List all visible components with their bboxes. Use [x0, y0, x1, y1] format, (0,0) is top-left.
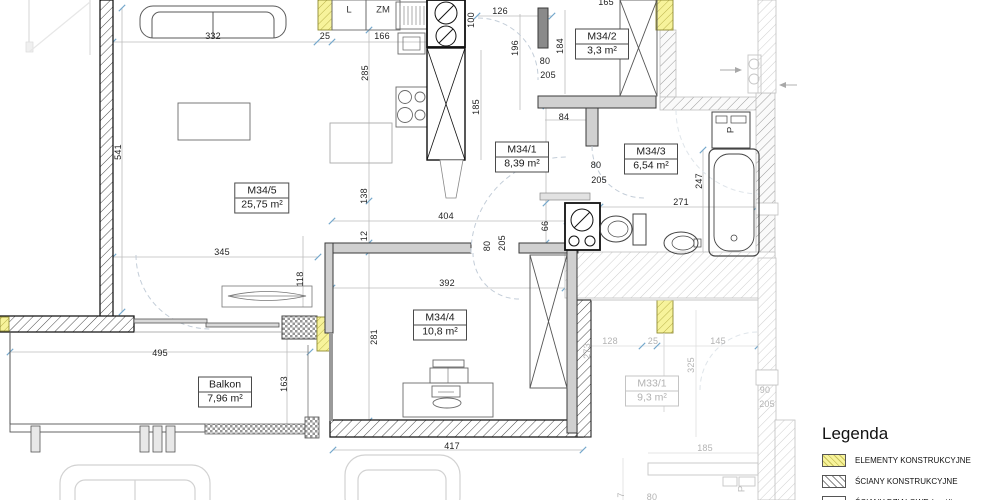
room-id: M33/1: [626, 377, 678, 391]
room-id: Balkon: [199, 378, 251, 392]
legend-swatch-grey-hatch-icon: [822, 475, 846, 488]
room-area: 25,75 m²: [235, 198, 288, 213]
fixture-label: L: [346, 5, 351, 16]
room-area: 8,39 m²: [496, 157, 548, 172]
dimension-label: 90: [760, 385, 770, 395]
dimension-label: 332: [205, 31, 221, 41]
room-id: M34/2: [576, 30, 628, 44]
room-label-M34-5: M34/525,75 m²: [234, 183, 289, 214]
legend-item-partition-walls: ŚCIANY DZIAŁOWE (możliwe: [822, 496, 1000, 500]
legend-item-structural-walls: ŚCIANY KONSTRUKCYJNE: [822, 475, 1000, 488]
fixture-label: ZM: [376, 5, 390, 16]
dimension-label: 185: [697, 443, 713, 453]
room-label-M34-1: M34/18,39 m²: [495, 142, 549, 173]
legend-item-structural-elements: ELEMENTY KONSTRUKCYJNE: [822, 454, 1000, 467]
dimension-label: 404: [438, 211, 454, 221]
dimension-label: 7: [616, 492, 626, 497]
fixture-label: P: [726, 127, 737, 133]
dimension-label: 541: [113, 144, 123, 160]
dimension-label: 145: [710, 336, 726, 346]
dimension-label: 325: [686, 357, 696, 373]
dimension-label: 118: [295, 272, 305, 287]
dimension-label: 165: [598, 0, 614, 7]
dimension-label: 285: [360, 65, 370, 81]
dimension-label: 80: [591, 160, 601, 170]
dimension-label: 80: [482, 241, 492, 251]
dimension-label: 205: [759, 399, 775, 409]
dimension-label: 84: [559, 112, 569, 122]
dimension-label: 100: [466, 12, 476, 28]
dimension-label: 392: [439, 278, 455, 288]
room-id: M34/3: [625, 145, 677, 159]
room-id: M34/1: [496, 143, 548, 157]
dimension-label: 185: [471, 99, 481, 115]
legend-swatch-yellow-hatch-icon: [822, 454, 846, 467]
room-id: M34/5: [235, 184, 288, 198]
room-area: 6,54 m²: [625, 159, 677, 174]
dimension-label: 196: [510, 40, 520, 56]
dimension-label: 205: [540, 70, 556, 80]
room-label-Balkon: Balkon7,96 m²: [198, 377, 252, 408]
dimension-label: 345: [214, 247, 230, 257]
room-area: 7,96 m²: [199, 392, 251, 407]
dimension-label: 163: [279, 376, 289, 392]
room-area: 3,3 m²: [576, 44, 628, 59]
fixture-label: P: [737, 486, 748, 492]
dimension-label: 281: [369, 329, 379, 345]
room-id: M34/4: [414, 311, 466, 325]
legend-title: Legenda: [822, 424, 1000, 444]
dimension-label: 12: [359, 231, 369, 241]
dimension-label: 80: [540, 56, 550, 66]
dimension-label: 495: [152, 348, 168, 358]
floor-plan-page: 3322516612610016519618480205285185841618…: [0, 0, 1000, 500]
dimension-label: 166: [374, 31, 390, 41]
room-area: 9,3 m²: [626, 391, 678, 406]
dimension-label: 247: [694, 173, 704, 189]
dimension-label: 184: [555, 38, 565, 54]
legend-swatch-plain-icon: [822, 496, 846, 500]
room-label-M34-4: M34/410,8 m²: [413, 310, 467, 341]
dimension-label: 66: [540, 221, 550, 231]
dimension-label: 126: [492, 6, 508, 16]
room-area: 10,8 m²: [414, 325, 466, 340]
dimension-label: 205: [591, 175, 607, 185]
dimension-label: 273: [582, 343, 592, 359]
dimension-label: 271: [673, 197, 689, 207]
dimension-label: 25: [320, 31, 330, 41]
legend: Legenda ELEMENTY KONSTRUKCYJNE ŚCIANY KO…: [822, 424, 1000, 500]
room-label-M34-2: M34/23,3 m²: [575, 29, 629, 60]
dimension-label: 417: [444, 441, 460, 451]
room-label-M33-1: M33/19,3 m²: [625, 376, 679, 407]
dimension-label: 25: [648, 336, 658, 346]
dimension-label: 128: [602, 336, 618, 346]
dimension-label: 80: [647, 492, 657, 500]
dimension-label: 138: [359, 188, 369, 204]
dimension-label: 205: [497, 235, 507, 251]
room-label-M34-3: M34/36,54 m²: [624, 144, 678, 175]
